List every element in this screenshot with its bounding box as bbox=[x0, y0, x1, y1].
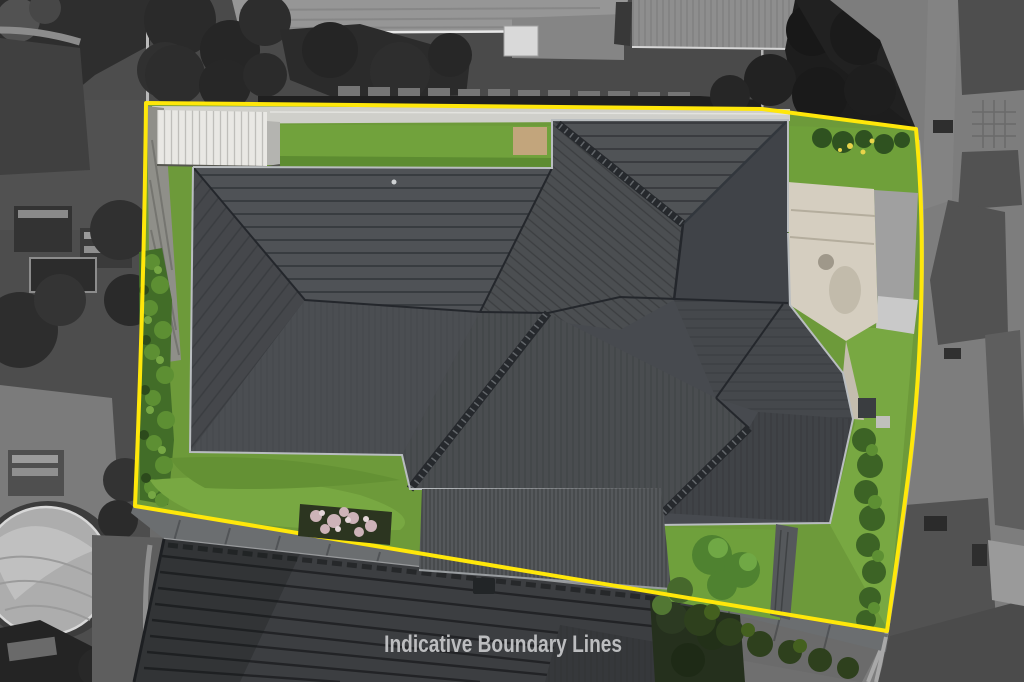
svg-text:Indicative Boundary Lines: Indicative Boundary Lines bbox=[384, 630, 622, 658]
